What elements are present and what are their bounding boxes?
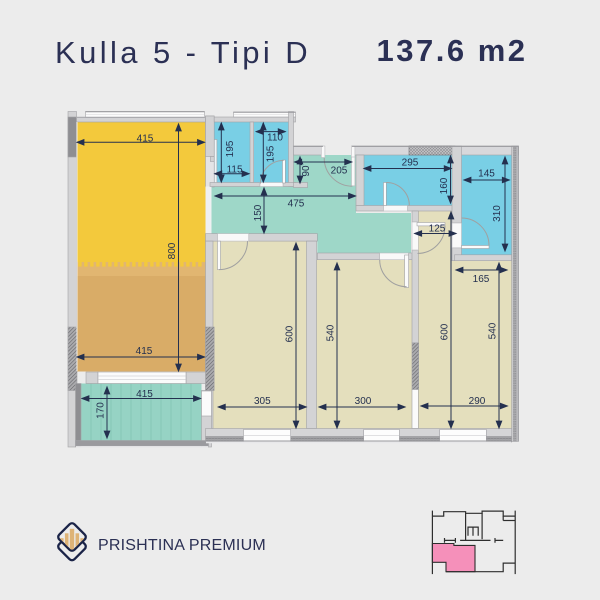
svg-text:150: 150 [253, 204, 264, 221]
svg-text:415: 415 [136, 389, 153, 400]
svg-text:295: 295 [402, 158, 419, 169]
svg-text:290: 290 [469, 396, 486, 407]
svg-text:600: 600 [440, 323, 451, 340]
svg-text:800: 800 [167, 242, 178, 259]
svg-text:115: 115 [227, 164, 243, 175]
svg-text:165: 165 [473, 274, 490, 285]
svg-text:PRISHTINA PREMIUM: PRISHTINA PREMIUM [98, 537, 266, 554]
svg-text:195: 195 [266, 145, 277, 162]
svg-text:195: 195 [225, 140, 236, 157]
svg-text:415: 415 [136, 346, 153, 357]
svg-text:300: 300 [355, 396, 372, 407]
svg-text:110: 110 [267, 133, 283, 144]
svg-text:415: 415 [137, 134, 154, 145]
svg-text:475: 475 [288, 199, 305, 210]
svg-text:170: 170 [96, 402, 107, 419]
svg-text:125: 125 [429, 224, 446, 235]
svg-text:90: 90 [301, 165, 312, 177]
svg-text:540: 540 [488, 322, 499, 339]
svg-text:Kulla 5 - Tipi D: Kulla 5 - Tipi D [55, 35, 311, 70]
svg-text:600: 600 [285, 325, 296, 342]
svg-text:160: 160 [439, 177, 450, 194]
svg-text:540: 540 [326, 324, 337, 341]
svg-text:145: 145 [478, 169, 495, 180]
svg-text:205: 205 [331, 166, 348, 177]
svg-text:305: 305 [254, 396, 271, 407]
svg-text:310: 310 [492, 205, 503, 222]
svg-text:137.6 m2: 137.6 m2 [377, 33, 528, 68]
